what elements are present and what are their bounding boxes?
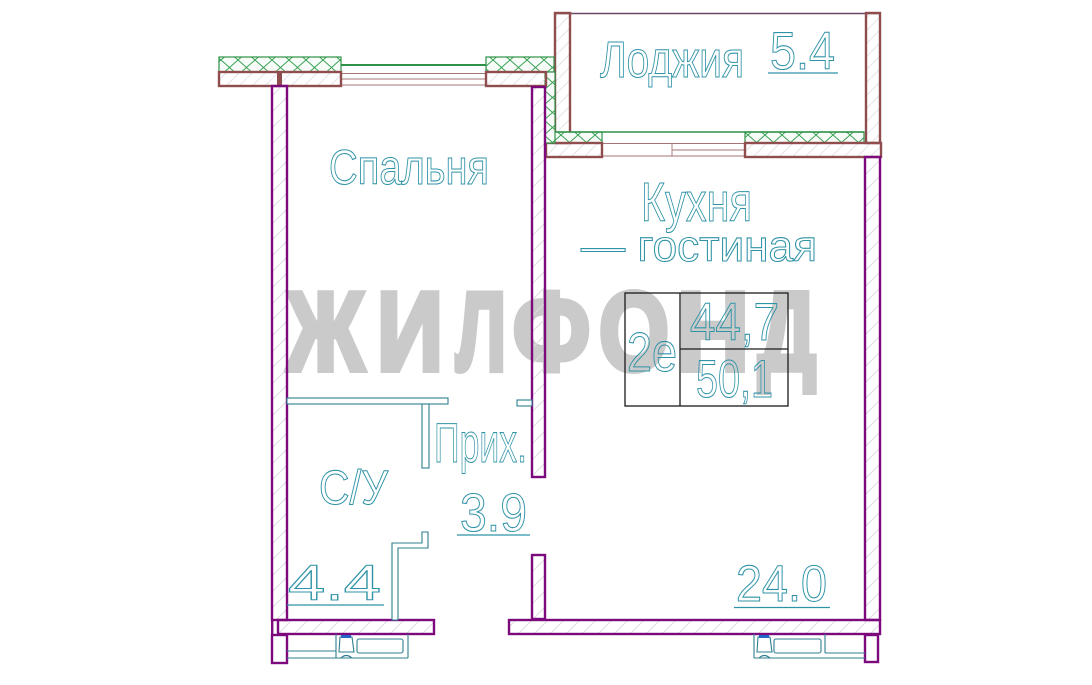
svg-text:— гостиная: — гостиная: [581, 222, 817, 271]
svg-text:4.4: 4.4: [288, 555, 381, 611]
svg-text:Ф: Ф: [513, 270, 590, 394]
svg-text:С/У: С/У: [319, 462, 388, 515]
svg-text:Прих.: Прих.: [434, 411, 527, 474]
svg-text:Лоджия: Лоджия: [600, 31, 744, 88]
svg-text:5.4: 5.4: [770, 22, 835, 81]
svg-text:И: И: [377, 270, 443, 394]
svg-text:3.9: 3.9: [460, 483, 527, 543]
svg-text:50,1: 50,1: [696, 350, 773, 409]
svg-text:44,7: 44,7: [690, 293, 779, 352]
svg-text:24.0: 24.0: [736, 555, 827, 612]
svg-text:Л: Л: [456, 270, 506, 394]
svg-text:2е: 2е: [627, 321, 677, 383]
svg-text:Ж: Ж: [286, 270, 364, 394]
svg-text:Спальня: Спальня: [329, 141, 489, 195]
